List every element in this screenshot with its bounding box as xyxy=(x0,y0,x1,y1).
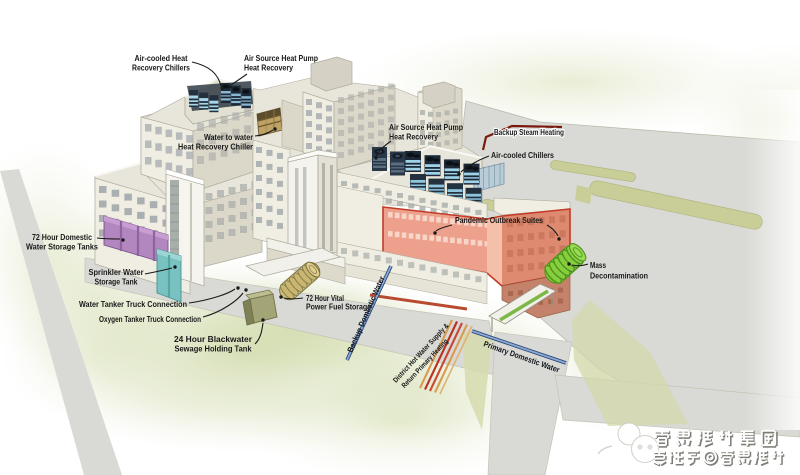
svg-text:Decontamination: Decontamination xyxy=(590,272,648,281)
svg-text:Storage Tank: Storage Tank xyxy=(95,278,138,287)
svg-text:Air Source Heat Pump: Air Source Heat Pump xyxy=(244,54,318,63)
svg-text:Backup Steam Heating: Backup Steam Heating xyxy=(494,127,564,137)
svg-text:Recovery Chillers: Recovery Chillers xyxy=(132,64,190,73)
svg-text:Heat Recovery: Heat Recovery xyxy=(244,64,293,73)
svg-text:Air-cooled Chillers: Air-cooled Chillers xyxy=(491,151,554,160)
svg-text:24 Hour Blackwater: 24 Hour Blackwater xyxy=(174,335,253,344)
svg-text:Power Fuel Storage: Power Fuel Storage xyxy=(306,303,371,312)
svg-text:Mass: Mass xyxy=(590,261,606,270)
svg-text:72 Hour Domestic: 72 Hour Domestic xyxy=(32,233,92,242)
svg-text:Air-cooled Heat: Air-cooled Heat xyxy=(135,54,188,63)
svg-text:Air Source Heat Pump: Air Source Heat Pump xyxy=(389,123,463,132)
svg-text:Oxygen Tanker Truck Connection: Oxygen Tanker Truck Connection xyxy=(99,315,201,324)
svg-text:Water Storage Tanks: Water Storage Tanks xyxy=(26,243,98,252)
svg-text:Water to water: Water to water xyxy=(204,133,254,142)
svg-text:Sewage Holding Tank: Sewage Holding Tank xyxy=(175,345,252,354)
svg-text:Heat Recovery: Heat Recovery xyxy=(389,133,438,142)
svg-text:Water Tanker Truck Connection: Water Tanker Truck Connection xyxy=(79,300,187,309)
svg-text:Pandemic Outbreak Suites: Pandemic Outbreak Suites xyxy=(455,216,543,225)
svg-text:Heat Recovery Chiller: Heat Recovery Chiller xyxy=(178,143,254,152)
svg-text:Sprinkler Water: Sprinkler Water xyxy=(89,268,145,277)
